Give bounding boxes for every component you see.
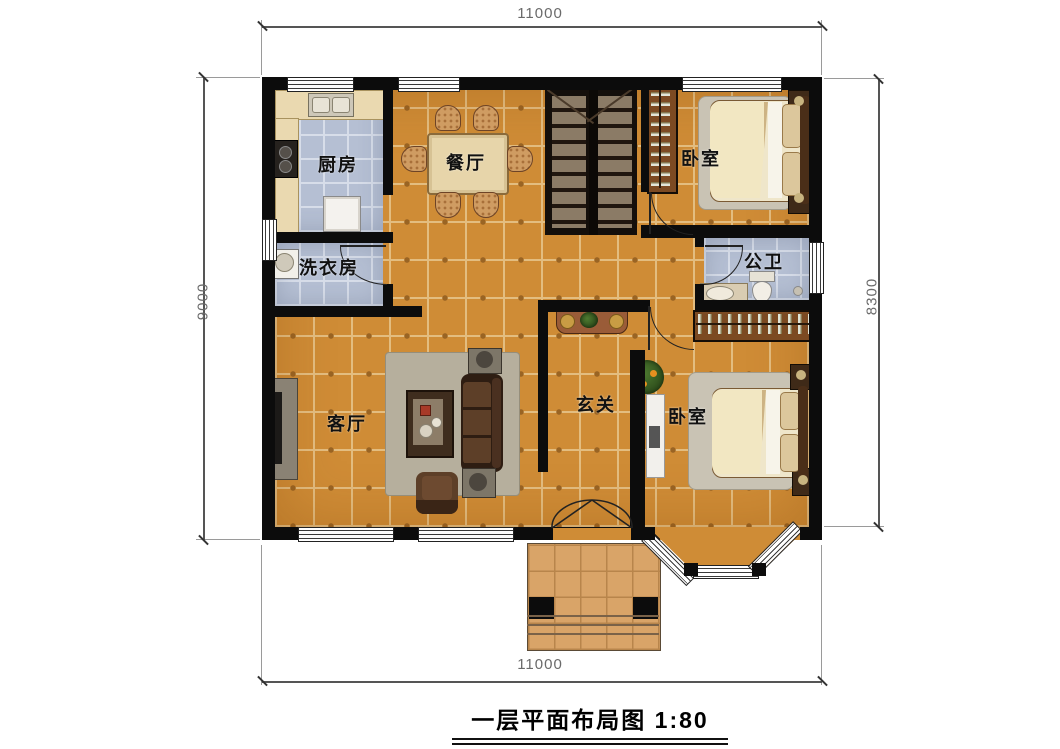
side-table-decor: [469, 473, 487, 491]
room-label-living: 客厅: [327, 410, 367, 436]
room-label-laundry: 洗衣房: [299, 254, 359, 280]
flower-dot: [650, 370, 657, 377]
wall-hall-foyer: [538, 300, 650, 312]
dining-chair: [435, 192, 461, 218]
console-plant: [580, 312, 598, 328]
window-bedroom-top-north: [682, 77, 782, 92]
entry-double-door: [550, 499, 634, 529]
dimension-bottom: 11000: [490, 656, 590, 673]
room-label-kitchen: 厨房: [318, 151, 358, 177]
entry-opening: [553, 528, 631, 540]
porch-step: [527, 624, 659, 626]
wall-bathroom-stub-a: [695, 238, 704, 247]
extension-line: [824, 526, 884, 527]
extension-line: [824, 78, 884, 79]
dimension-line-top: [262, 26, 822, 28]
washer-drum: [275, 253, 294, 272]
wall-kitchen-laundry: [262, 232, 393, 243]
porch-step: [527, 615, 659, 617]
wall-laundry-stub: [383, 284, 393, 306]
bathroom-basin: [706, 286, 734, 301]
side-table-decor: [476, 351, 493, 368]
bed-bottom-sheet: [766, 390, 780, 474]
dining-chair: [507, 146, 533, 172]
pillow: [782, 152, 802, 196]
floor-drain: [793, 286, 803, 296]
stair-treads-right: [598, 96, 632, 228]
tray-item: [420, 405, 431, 416]
tv-screen: [274, 392, 282, 464]
window-laundry-west: [262, 219, 277, 261]
dimension-line-bottom: [262, 681, 822, 683]
wall-hall-bedroom-top: [641, 77, 649, 192]
refrigerator: [323, 196, 361, 232]
extension-line: [821, 20, 822, 75]
room-label-bedroom-top: 卧室: [681, 145, 721, 171]
room-label-dining: 餐厅: [446, 149, 486, 175]
porch-step: [527, 633, 659, 635]
pillow: [782, 104, 802, 148]
room-label-bathroom: 公卫: [744, 248, 784, 274]
wall-bathroom-south: [695, 300, 814, 310]
plate: [431, 417, 442, 428]
extension-line: [821, 545, 822, 685]
bed-bottom-blanket: [712, 390, 766, 474]
stair-divider: [589, 85, 598, 235]
pillow: [780, 434, 800, 472]
window-kitchen-north: [287, 77, 354, 92]
window-living-south-1: [298, 527, 394, 542]
dining-chair: [401, 146, 427, 172]
stove-burner-2: [279, 160, 292, 173]
window-living-south-2: [418, 527, 514, 542]
console-bowl: [609, 314, 624, 329]
window-dining-north: [398, 77, 460, 92]
sofa-back: [492, 378, 501, 468]
bedroom-tv: [649, 426, 660, 448]
kitchen-sink-bowl-left: [312, 97, 330, 113]
armchair-cushion: [422, 476, 452, 500]
wardrobe-rail: [659, 90, 661, 188]
bed-top-sheet: [768, 102, 782, 198]
armchair-back: [416, 500, 458, 514]
wall-bedroom-top-south: [641, 225, 814, 238]
dining-chair: [435, 105, 461, 131]
dimension-top: 11000: [490, 5, 590, 22]
extension-line: [261, 20, 262, 75]
bay-post: [641, 527, 655, 540]
bed-bottom-headboard: [798, 386, 808, 478]
wall-kitchen-dining: [383, 77, 393, 195]
dining-chair: [473, 192, 499, 218]
dining-chair: [473, 105, 499, 131]
extension-line: [261, 545, 262, 685]
sofa-seats: [463, 382, 491, 464]
nightstand-lamp: [796, 370, 806, 380]
nightstand-lamp: [794, 193, 804, 203]
plate: [419, 424, 433, 438]
floor-plan-canvas: 11000 11000 9000 8300: [0, 0, 1060, 749]
bay-post: [684, 563, 698, 576]
pillow: [780, 392, 800, 430]
dimension-right: 8300: [864, 247, 881, 347]
nightstand-lamp: [798, 475, 808, 485]
console-bowl: [560, 314, 575, 329]
stove-burner-1: [279, 146, 292, 159]
room-label-bedroom-bottom: 卧室: [668, 403, 708, 429]
wall-foyer-west: [538, 300, 548, 472]
bay-post: [752, 563, 766, 576]
wall-laundry-living: [262, 306, 422, 317]
kitchen-sink-bowl-right: [332, 97, 350, 113]
dimension-left: 9000: [195, 252, 212, 352]
hall-closet-rail: [696, 323, 811, 325]
plan-title: 一层平面布局图 1:80: [452, 701, 728, 745]
room-label-foyer: 玄关: [576, 391, 616, 417]
bay-post: [800, 527, 814, 540]
window-bathroom-east: [809, 242, 824, 294]
nightstand-lamp: [794, 96, 804, 106]
